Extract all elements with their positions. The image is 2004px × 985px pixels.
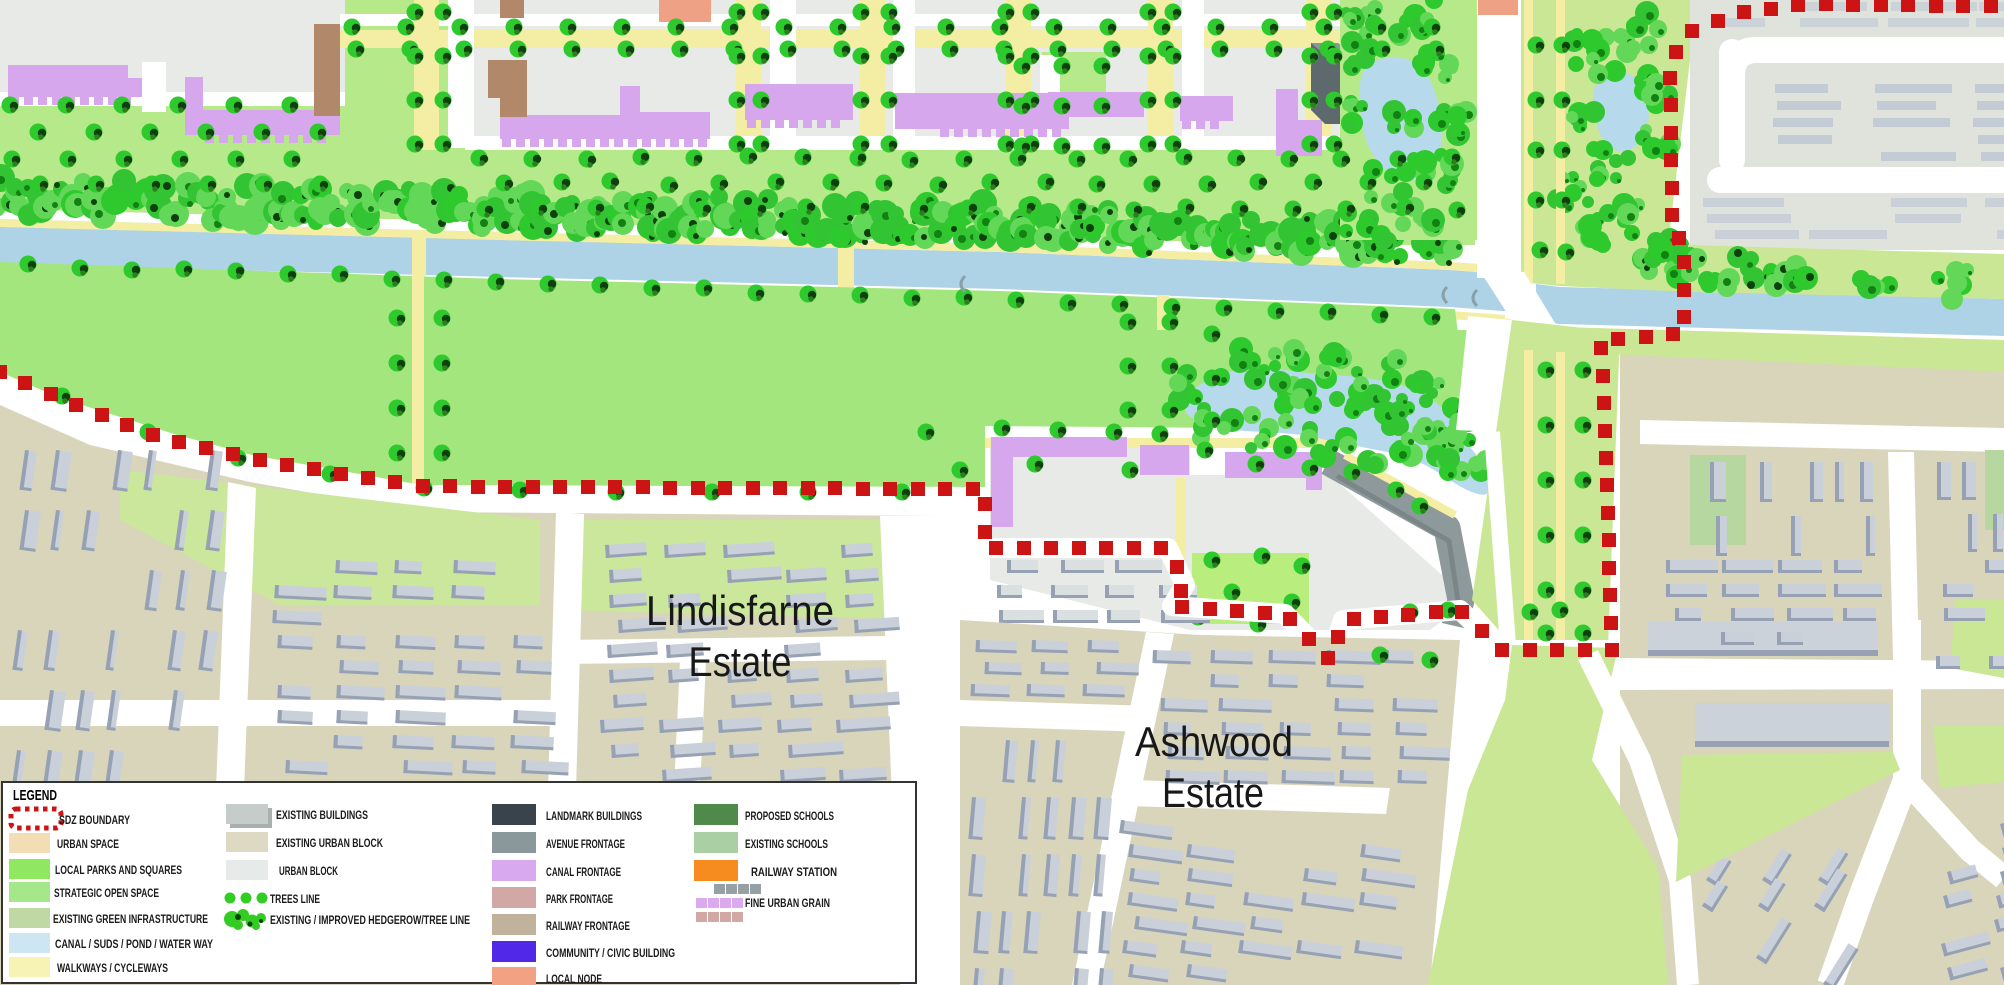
svg-text:LOCAL NODE: LOCAL NODE	[546, 972, 602, 985]
svg-text:URBAN SPACE: URBAN SPACE	[57, 837, 119, 851]
svg-text:EXISTING / IMPROVED HEDGEROW/T: EXISTING / IMPROVED HEDGEROW/TREE LINE	[270, 913, 470, 927]
svg-text:CANAL FRONTAGE: CANAL FRONTAGE	[546, 865, 621, 879]
svg-text:Estate: Estate	[1162, 769, 1264, 816]
svg-text:Ashwood: Ashwood	[1135, 718, 1293, 765]
svg-text:EXISTING SCHOOLS: EXISTING SCHOOLS	[745, 837, 828, 851]
svg-text:Estate: Estate	[689, 638, 792, 685]
svg-text:LEGEND: LEGEND	[13, 787, 57, 804]
svg-text:PARK FRONTAGE: PARK FRONTAGE	[546, 892, 613, 906]
svg-text:PROPOSED SCHOOLS: PROPOSED SCHOOLS	[745, 809, 834, 823]
svg-text:Lindisfarne: Lindisfarne	[646, 587, 834, 634]
svg-text:RAILWAY FRONTAGE: RAILWAY FRONTAGE	[546, 919, 630, 933]
svg-text:CANAL / SUDS / POND / WATER WA: CANAL / SUDS / POND / WATER WAY	[55, 937, 213, 951]
svg-text:LOCAL PARKS AND SQUARES: LOCAL PARKS AND SQUARES	[55, 863, 182, 877]
svg-text:TREES LINE: TREES LINE	[270, 892, 320, 906]
svg-text:URBAN BLOCK: URBAN BLOCK	[279, 864, 338, 878]
svg-text:EXISTING GREEN INFRASTRUCTURE: EXISTING GREEN INFRASTRUCTURE	[53, 912, 208, 926]
svg-text:FINE URBAN GRAIN: FINE URBAN GRAIN	[745, 896, 830, 910]
svg-text:EXISTING URBAN BLOCK: EXISTING URBAN BLOCK	[276, 836, 383, 850]
svg-text:AVENUE FRONTAGE: AVENUE FRONTAGE	[546, 837, 625, 851]
svg-text:COMMUNITY / CIVIC BUILDING: COMMUNITY / CIVIC BUILDING	[546, 946, 675, 960]
svg-text:SDZ BOUNDARY: SDZ BOUNDARY	[59, 813, 130, 827]
svg-text:LANDMARK BUILDINGS: LANDMARK BUILDINGS	[546, 809, 642, 823]
svg-text:STRATEGIC OPEN SPACE: STRATEGIC OPEN SPACE	[54, 886, 159, 900]
svg-text:EXISTING BUILDINGS: EXISTING BUILDINGS	[276, 808, 368, 822]
svg-text:RAILWAY STATION: RAILWAY STATION	[751, 865, 837, 879]
svg-text:WALKWAYS / CYCLEWAYS: WALKWAYS / CYCLEWAYS	[57, 961, 168, 975]
